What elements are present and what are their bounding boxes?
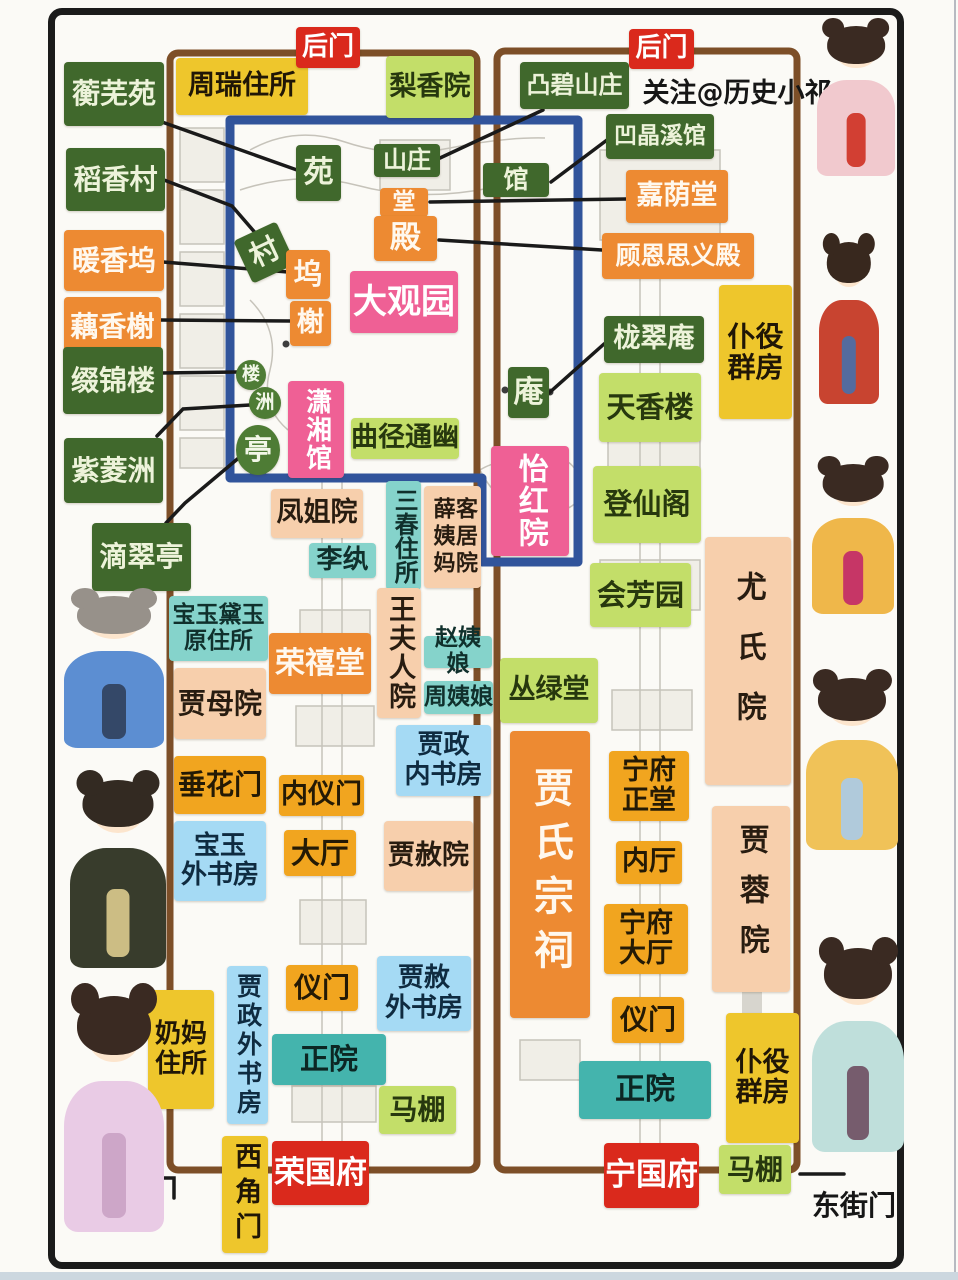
- yihong-yuan: 怡红院: [491, 446, 569, 556]
- connector-line-5: [157, 405, 250, 436]
- yihong-yuan-text: 怡红院: [514, 453, 546, 549]
- mapeng-east-text: 马棚: [727, 1154, 783, 1185]
- doll-girl-teal-hair: [824, 948, 892, 999]
- ting-marker-text: 亭: [244, 434, 272, 465]
- ouxiang-xie-text: 藕香榭: [70, 311, 154, 342]
- doll-girl-fan: [806, 678, 898, 850]
- dongjie-men: 东街门: [810, 1189, 898, 1223]
- doll-girl-red-sash: [842, 336, 856, 394]
- sanchun-zhusuo-text: 三春住所: [391, 488, 416, 584]
- yimen-east-text: 仪门: [620, 1004, 676, 1035]
- daguanyuan-text: 大观园: [353, 283, 455, 321]
- xueyima-kejuyuan: 薛姨妈客居院: [424, 486, 481, 588]
- connector-line-0: [162, 122, 297, 170]
- back-gate-west-text: 后门: [302, 33, 354, 62]
- xie-marker: 榭: [290, 301, 331, 346]
- ningfu-dating: 宁府 大厅: [604, 904, 688, 974]
- jiayin-tang-text: 嘉荫堂: [637, 181, 718, 211]
- jiazheng-neishufang: 贾政 内书房: [396, 725, 491, 796]
- doll-girl-gold: [812, 464, 894, 614]
- aojing-xiguan-text: 凹晶溪馆: [614, 124, 706, 150]
- connector-line-3: [160, 320, 291, 321]
- zhengyuan-west: 正院: [272, 1034, 386, 1085]
- connector-line-10: [439, 240, 602, 250]
- ziling-zhou: 紫菱洲: [64, 438, 163, 503]
- wu-marker-text: 坞: [293, 258, 322, 290]
- tianxiang-lou: 天香楼: [599, 373, 701, 442]
- xiaoxiang-guan: 潇湘馆: [288, 381, 344, 478]
- jiashi-zongci: 贾氏宗祠: [510, 731, 590, 1018]
- zhengyuan-west-text: 正院: [300, 1043, 358, 1075]
- zhou-yiniang-text: 周姨娘: [424, 685, 493, 711]
- yimen-west-text: 仪门: [294, 972, 350, 1003]
- jiamu-yuan-text: 贾母院: [178, 688, 262, 719]
- puyi-qunfang-south-text: 仆役 群房: [736, 1048, 790, 1108]
- puyi-qunfang-north: 仆役 群房: [719, 285, 792, 419]
- dengxian-ge-text: 登仙阁: [603, 488, 690, 520]
- doll-girl-pink-hair: [827, 26, 885, 64]
- wu-marker: 坞: [286, 250, 330, 299]
- zhou-marker-text: 洲: [255, 392, 274, 413]
- wangfuren-yuan: 王夫人院: [377, 588, 421, 718]
- zhourui-zhusuo-text: 周瑞住所: [188, 71, 296, 101]
- zhao-yiniang-text: 赵姨娘: [424, 626, 492, 678]
- guan-marker: 馆: [483, 163, 549, 197]
- fengjie-yuan-text: 凤姐院: [277, 498, 358, 528]
- ningguo-fu: 宁国府: [604, 1143, 699, 1208]
- doll-granny-blue: [64, 596, 164, 748]
- tubi-shanzhuang: 凸碧山庄: [520, 62, 629, 109]
- jiashe-waishufang: 贾赦 外书房: [377, 956, 471, 1031]
- jiamu-yuan: 贾母院: [174, 668, 266, 739]
- photo-right-edge: [954, 0, 956, 1280]
- nei-ting-text: 内厅: [622, 847, 676, 877]
- dicui-ting-text: 滴翠亭: [99, 541, 183, 572]
- hengwu-yuan-text: 蘅芜苑: [72, 78, 156, 109]
- guan-marker-text: 馆: [503, 166, 528, 194]
- jiayin-tang: 嘉荫堂: [626, 170, 728, 223]
- aojing-xiguan: 凹晶溪馆: [606, 114, 714, 159]
- zhuijin-lou: 缀锦楼: [63, 347, 163, 414]
- yimen-west: 仪门: [286, 965, 358, 1011]
- doll-girl-pink: [817, 26, 895, 176]
- rongguo-fu-text: 荣国府: [274, 1156, 367, 1191]
- lixiang-yuan-text: 梨香院: [390, 72, 471, 102]
- doll-girl-fan-sash: [841, 778, 863, 840]
- fengjie-yuan: 凤姐院: [271, 489, 363, 538]
- zhengyuan-east: 正院: [579, 1061, 711, 1119]
- longcui-an-text: 栊翠庵: [614, 324, 695, 354]
- neiyi-men-text: 内仪门: [281, 780, 362, 810]
- tang-marker-text: 堂: [393, 190, 416, 216]
- connector-line-11: [549, 344, 604, 393]
- jiarong-yuan: 贾蓉院: [712, 806, 790, 992]
- wangfuren-yuan-text: 王夫人院: [385, 595, 413, 711]
- sanchun-zhusuo: 三春住所: [386, 481, 421, 590]
- xueyima-kejuyuan-text: 薛姨妈客居院: [430, 486, 475, 588]
- rongguo-fu: 荣国府: [272, 1141, 369, 1205]
- tianxiang-lou-text: 天香楼: [606, 391, 693, 423]
- dicui-ting: 滴翠亭: [92, 523, 191, 591]
- doll-lady-dark: [70, 780, 166, 968]
- jiazheng-waishufang-text: 贾政外书房: [234, 973, 260, 1118]
- baoyu-daiyu-yuanzhusuo: 宝玉黛玉 原住所: [169, 596, 268, 661]
- yimen-east: 仪门: [612, 997, 684, 1043]
- puyi-qunfang-south: 仆役 群房: [726, 1013, 799, 1143]
- zhou-yiniang: 周姨娘: [424, 681, 493, 714]
- doll-girl-gold-hair: [823, 464, 884, 502]
- rongxi-tang: 荣禧堂: [269, 633, 371, 694]
- daoxiang-cun-text: 稻香村: [73, 164, 157, 195]
- baoyu-daiyu-yuanzhusuo-text: 宝玉黛玉 原住所: [173, 603, 265, 655]
- mapeng-west-text: 马棚: [389, 1094, 445, 1125]
- connector-line-1: [164, 180, 258, 236]
- jiashe-yuan: 贾赦院: [384, 821, 473, 891]
- daoxiang-cun: 稻香村: [66, 148, 165, 211]
- doll-granny-blue-hair: [77, 596, 151, 634]
- yuan-marker: 苑: [296, 145, 341, 201]
- jiashe-waishufang-text: 贾赦 外书房: [385, 964, 463, 1022]
- dengxian-ge: 登仙阁: [593, 466, 701, 543]
- zhengyuan-east-text: 正院: [615, 1073, 675, 1107]
- an-marker-text: 庵: [514, 376, 544, 410]
- dongjie-men-text: 东街门: [812, 1190, 896, 1221]
- doll-girl-pink-sash: [847, 113, 866, 167]
- xie-marker-text: 榭: [297, 308, 324, 338]
- tang-marker: 堂: [380, 188, 428, 217]
- conglv-tang: 丛绿堂: [500, 658, 598, 723]
- daguanyuan: 大观园: [350, 271, 458, 333]
- back-gate-east: 后门: [629, 29, 694, 69]
- xijiao-men-text: 西角门: [231, 1142, 259, 1247]
- dian-marker-text: 殿: [390, 221, 421, 256]
- jiazheng-waishufang: 贾政外书房: [227, 966, 268, 1124]
- doll-girl-lilac-sash: [102, 1133, 126, 1218]
- jiazheng-neishufang-text: 贾政 内书房: [404, 731, 482, 789]
- zhourui-zhusuo: 周瑞住所: [176, 58, 308, 115]
- youshi-yuan-text: 尤氏院: [732, 571, 764, 751]
- da-ting-text: 大厅: [291, 837, 349, 869]
- li-wan: 李纨: [309, 543, 376, 578]
- zhou-marker: 洲: [249, 387, 281, 419]
- cun-marker-text: 村: [244, 232, 284, 274]
- connector-line-6: [166, 456, 241, 523]
- connector-line-4: [161, 372, 237, 373]
- dian-marker: 殿: [374, 216, 437, 261]
- watermark-text: 关注@历史小祁: [643, 79, 832, 109]
- huifang-yuan-text: 会芳园: [597, 579, 684, 611]
- ting-marker: 亭: [236, 425, 280, 475]
- ningguo-fu-text: 宁国府: [605, 1158, 698, 1193]
- doll-girl-lilac-hair: [77, 996, 151, 1055]
- ningfu-dating-text: 宁府 大厅: [619, 909, 673, 969]
- chuihua-men: 垂花门: [174, 756, 266, 814]
- youshi-yuan: 尤氏院: [705, 537, 791, 785]
- mapeng-east: 马棚: [719, 1145, 791, 1194]
- lixiang-yuan: 梨香院: [386, 56, 474, 118]
- doll-girl-red-hair: [827, 242, 871, 283]
- hengwu-yuan: 蘅芜苑: [64, 62, 164, 126]
- longcui-an: 栊翠庵: [604, 316, 704, 363]
- shanzhuang-marker-text: 山庄: [383, 147, 431, 174]
- qujing-tongyou-text: 曲径通幽: [351, 423, 459, 453]
- nei-ting: 内厅: [616, 841, 682, 884]
- connector-line-8: [551, 140, 607, 182]
- da-ting: 大厅: [284, 830, 356, 876]
- guen-siyi-dian-text: 顾恩思义殿: [615, 242, 740, 270]
- nuanxiang-wu-text: 暖香坞: [72, 245, 156, 276]
- watermark: 关注@历史小祁: [641, 78, 833, 110]
- xijiao-men: 西角门: [222, 1136, 268, 1253]
- qujing-tongyou: 曲径通幽: [351, 418, 459, 459]
- red-chamber-mansion-map: 蘅芜苑周瑞住所后门梨香院凸碧山庄后门凹晶溪馆嘉荫堂顾恩思义殿稻香村暖香坞藕香榭缀…: [0, 0, 958, 1280]
- nuanxiang-wu: 暖香坞: [64, 230, 164, 291]
- zhao-yiniang: 赵姨娘: [424, 636, 492, 668]
- an-marker: 庵: [508, 367, 549, 418]
- baoyu-waishufang-text: 宝玉 外书房: [181, 832, 259, 890]
- doll-girl-lilac: [64, 996, 164, 1232]
- doll-girl-red: [819, 242, 879, 404]
- jiashi-zongci-text: 贾氏宗祠: [529, 767, 571, 983]
- doll-lady-dark-hair: [82, 780, 153, 827]
- doll-girl-teal-sash: [847, 1066, 869, 1139]
- doll-girl-teal: [812, 948, 904, 1152]
- mapeng-west: 马棚: [379, 1086, 456, 1134]
- lou-marker-text: 楼: [242, 365, 260, 385]
- puyi-qunfang-north-text: 仆役 群房: [727, 321, 783, 384]
- baoyu-waishufang: 宝玉 外书房: [174, 821, 266, 901]
- lou-marker: 楼: [236, 360, 266, 390]
- zhuijin-lou-text: 缀锦楼: [71, 365, 155, 396]
- jiashe-yuan-text: 贾赦院: [388, 841, 469, 871]
- conglv-tang-text: 丛绿堂: [509, 675, 590, 705]
- li-wan-text: 李纨: [316, 546, 368, 575]
- guen-siyi-dian: 顾恩思义殿: [602, 233, 754, 279]
- ningfu-zhengtang-text: 宁府 正堂: [622, 756, 676, 816]
- chuihua-men-text: 垂花门: [178, 769, 262, 800]
- xiaoxiang-guan-text: 潇湘馆: [302, 388, 329, 472]
- tubi-shanzhuang-text: 凸碧山庄: [527, 72, 623, 99]
- doll-girl-fan-hair: [818, 678, 886, 721]
- photo-bottom-strip: [0, 1272, 958, 1280]
- connector-line-9: [430, 199, 626, 202]
- neiyi-men: 内仪门: [279, 775, 364, 816]
- ningfu-zhengtang: 宁府 正堂: [609, 751, 689, 821]
- jiarong-yuan-text: 贾蓉院: [735, 824, 767, 974]
- doll-girl-gold-sash: [843, 551, 863, 605]
- doll-granny-blue-sash: [102, 684, 126, 739]
- doll-lady-dark-sash: [106, 889, 129, 957]
- back-gate-west: 后门: [296, 27, 360, 68]
- yuan-marker-text: 苑: [304, 156, 334, 190]
- ziling-zhou-text: 紫菱洲: [71, 455, 155, 486]
- huifang-yuan: 会芳园: [590, 563, 691, 627]
- back-gate-east-text: 后门: [635, 34, 687, 63]
- shanzhuang-marker: 山庄: [374, 144, 440, 177]
- rongxi-tang-text: 荣禧堂: [275, 647, 365, 681]
